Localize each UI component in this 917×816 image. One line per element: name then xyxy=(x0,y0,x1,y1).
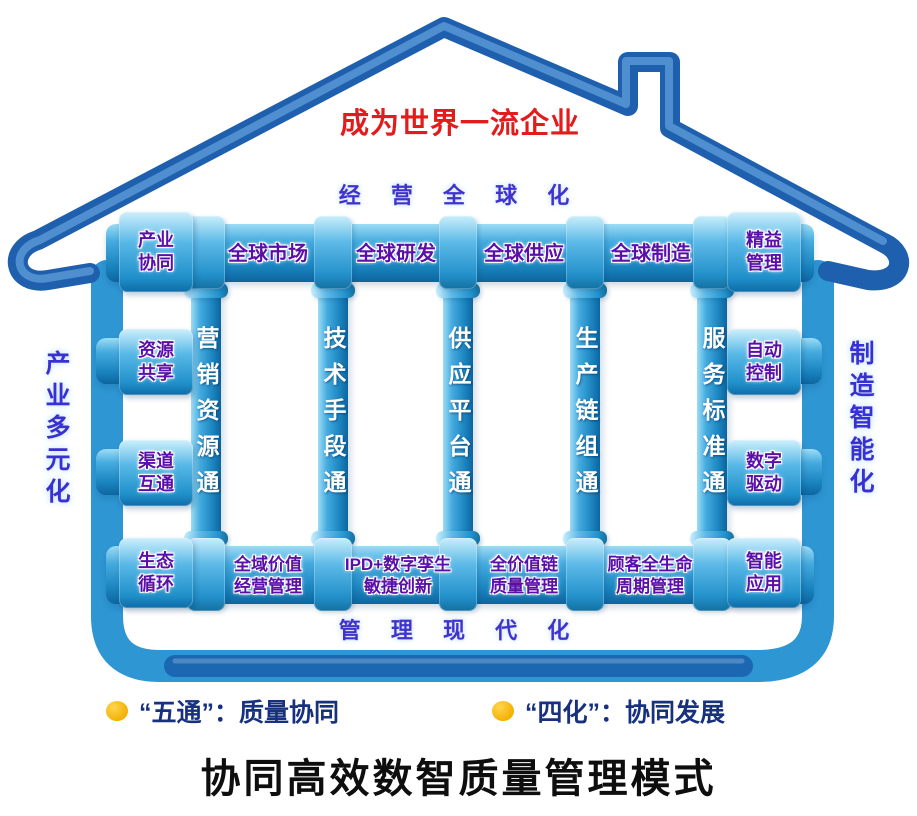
segment-global-rnd: 全球研发 xyxy=(344,237,448,271)
column-marketing-resource: 营销资源通 xyxy=(189,292,223,540)
segment-full-value-chain-quality: 全价值链 质量管理 xyxy=(462,550,586,602)
segment-global-market: 全球市场 xyxy=(216,237,320,271)
diagram-canvas: 产业 协同 精益 管理 资源 共享 渠道 互通 自动 控制 数字 驱动 生态 循… xyxy=(0,0,917,816)
joint-digital-drive: 数字 驱动 xyxy=(727,440,801,506)
joint-resource-sharing-label: 资源 共享 xyxy=(138,339,174,385)
column-supply-platform: 供应平台通 xyxy=(441,292,475,540)
legend-item-sihua: “四化”：协同发展 xyxy=(492,694,725,728)
legend-item-wutong: “五通”：质量协同 xyxy=(106,694,339,728)
joint-auto-control-label: 自动 控制 xyxy=(746,339,782,385)
joint-channel-interconnect-label: 渠道 互通 xyxy=(138,450,174,496)
top-banner-global-operation: 经 营 全 球 化 xyxy=(298,178,622,210)
joint-lean-management-label: 精益 管理 xyxy=(746,229,782,275)
joint-intelligent-application-label: 智能 应用 xyxy=(746,550,782,596)
vision-text: 成为世界一流企业 xyxy=(280,100,640,142)
segment-global-supply: 全球供应 xyxy=(472,237,576,271)
joint-channel-interconnect: 渠道 互通 xyxy=(119,440,193,506)
legend-wutong-label: “五通”：质量协同 xyxy=(139,693,339,729)
column-tech-means: 技术手段通 xyxy=(316,292,350,540)
joint-lean-management: 精益 管理 xyxy=(727,212,801,292)
joint-eco-cycle: 生态 循环 xyxy=(119,538,193,608)
joint-intelligent-application: 智能 应用 xyxy=(727,538,801,608)
segment-whole-domain-value: 全域价值 经营管理 xyxy=(206,550,330,602)
joint-eco-cycle-label: 生态 循环 xyxy=(138,550,174,596)
left-banner-industry-diversification: 产业多元化 xyxy=(36,342,76,517)
bullet-icon xyxy=(106,701,128,721)
segment-customer-lifecycle: 顾客全生命 周期管理 xyxy=(588,550,712,602)
bottom-banner-management-modernization: 管 理 现 代 化 xyxy=(298,613,622,645)
segment-global-manufacturing: 全球制造 xyxy=(599,237,703,271)
joint-industry-synergy: 产业 协同 xyxy=(119,212,193,292)
joint-industry-synergy-label: 产业 协同 xyxy=(138,229,174,275)
right-banner-manufacturing-intelligence: 制造智能化 xyxy=(840,330,880,510)
joint-digital-drive-label: 数字 驱动 xyxy=(746,450,782,496)
column-production-chain: 生产链组通 xyxy=(568,292,602,540)
legend-sihua-label: “四化”：协同发展 xyxy=(525,693,725,729)
column-service-standard: 服务标准通 xyxy=(695,292,729,540)
page-title: 协同高效数智质量管理模式 xyxy=(0,746,917,804)
bullet-icon xyxy=(492,701,514,721)
joint-resource-sharing: 资源 共享 xyxy=(119,329,193,395)
joint-auto-control: 自动 控制 xyxy=(727,329,801,395)
segment-ipd-digital-twin: IPD+数字孪生 敏捷创新 xyxy=(336,550,460,602)
